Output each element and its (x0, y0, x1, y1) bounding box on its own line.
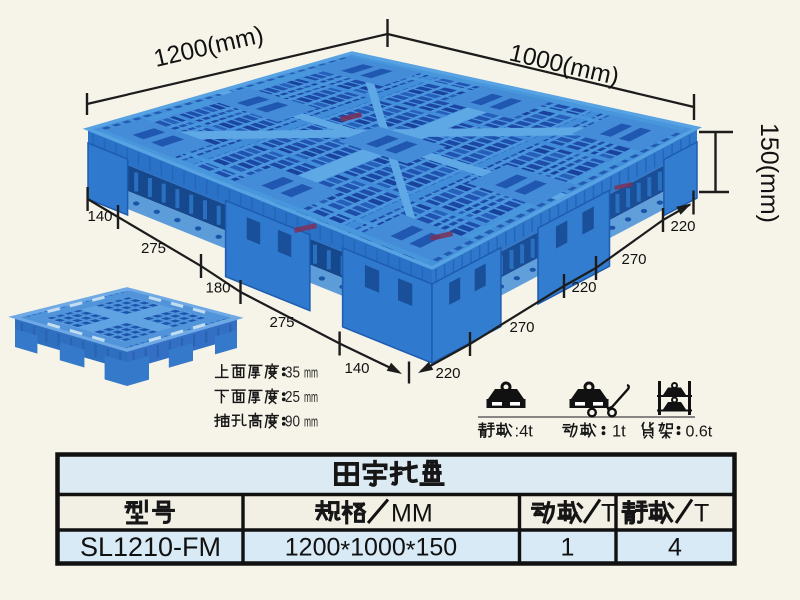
svg-text:275: 275 (141, 240, 166, 257)
svg-text:SL1210-FM: SL1210-FM (80, 532, 221, 562)
svg-text::4t: :4t (515, 423, 534, 441)
svg-text:150(mm): 150(mm) (755, 123, 783, 223)
svg-text:1: 1 (561, 534, 575, 562)
svg-text:mm: mm (304, 365, 318, 382)
svg-text:mm: mm (304, 414, 318, 431)
svg-text:mm: mm (304, 389, 318, 406)
svg-text:90: 90 (285, 414, 300, 431)
svg-text:220: 220 (571, 279, 596, 296)
svg-text:35: 35 (285, 365, 300, 382)
svg-text:220: 220 (670, 218, 695, 235)
svg-text:1200*1000*150: 1200*1000*150 (285, 534, 457, 565)
svg-text:220: 220 (435, 365, 460, 382)
svg-text:0.6t: 0.6t (686, 424, 713, 441)
svg-text:MM: MM (391, 500, 433, 528)
svg-text:4: 4 (668, 534, 682, 562)
svg-text:T: T (601, 500, 616, 528)
svg-text:1t: 1t (612, 423, 626, 441)
svg-text:270: 270 (509, 319, 534, 336)
svg-text:140: 140 (344, 360, 369, 377)
svg-text:275: 275 (269, 314, 294, 331)
svg-text:180: 180 (205, 280, 230, 297)
svg-text:140: 140 (87, 208, 112, 225)
svg-text:270: 270 (621, 251, 646, 268)
svg-text:25: 25 (285, 389, 300, 406)
svg-text:T: T (694, 500, 709, 528)
